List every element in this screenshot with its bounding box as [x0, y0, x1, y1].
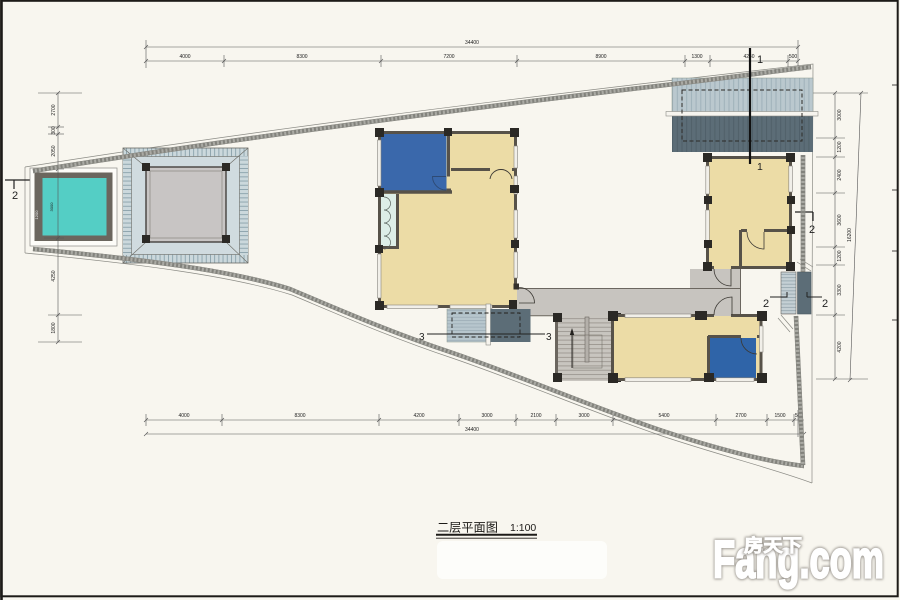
svg-text:1500: 1500: [774, 413, 785, 419]
svg-text:2400: 2400: [837, 169, 843, 180]
svg-text:2100: 2100: [530, 413, 541, 419]
svg-text:7200: 7200: [443, 54, 454, 60]
svg-text:2: 2: [822, 298, 828, 310]
svg-text:8300: 8300: [296, 54, 307, 60]
svg-text:2: 2: [809, 224, 815, 236]
svg-text:2050: 2050: [51, 145, 57, 156]
svg-text:3000: 3000: [578, 413, 589, 419]
svg-text:1: 1: [757, 54, 763, 66]
svg-text:500: 500: [789, 54, 798, 60]
svg-text:8300: 8300: [294, 413, 305, 419]
svg-text:34400: 34400: [465, 427, 479, 433]
svg-text:3000: 3000: [837, 109, 843, 120]
svg-text:3600: 3600: [837, 214, 843, 225]
svg-text:4200: 4200: [837, 341, 843, 352]
svg-text:房天下: 房天下: [744, 536, 802, 556]
svg-text:16200: 16200: [847, 228, 853, 242]
svg-text:4200: 4200: [413, 413, 424, 419]
svg-text:2700: 2700: [51, 104, 57, 115]
svg-text:3300: 3300: [837, 284, 843, 295]
svg-text:1300: 1300: [691, 54, 702, 60]
svg-text:1200: 1200: [34, 210, 39, 220]
svg-text:34400: 34400: [465, 40, 479, 46]
svg-text:1800: 1800: [51, 322, 57, 333]
svg-text:3: 3: [546, 332, 552, 343]
svg-text:1:100: 1:100: [510, 522, 536, 534]
svg-text:2: 2: [763, 298, 769, 310]
svg-text:4000: 4000: [179, 54, 190, 60]
svg-text:2: 2: [12, 190, 18, 202]
svg-text:1200: 1200: [837, 141, 843, 152]
svg-text:4000: 4000: [178, 413, 189, 419]
svg-text:4250: 4250: [51, 270, 57, 281]
svg-text:1200: 1200: [837, 250, 843, 261]
svg-text:二层平面图: 二层平面图: [437, 521, 498, 535]
svg-text:8900: 8900: [595, 54, 606, 60]
svg-text:5400: 5400: [658, 413, 669, 419]
svg-text:300: 300: [51, 126, 57, 135]
svg-text:2700: 2700: [735, 413, 746, 419]
svg-text:1: 1: [757, 161, 763, 173]
svg-text:3000: 3000: [481, 413, 492, 419]
svg-text:3000: 3000: [49, 202, 54, 212]
